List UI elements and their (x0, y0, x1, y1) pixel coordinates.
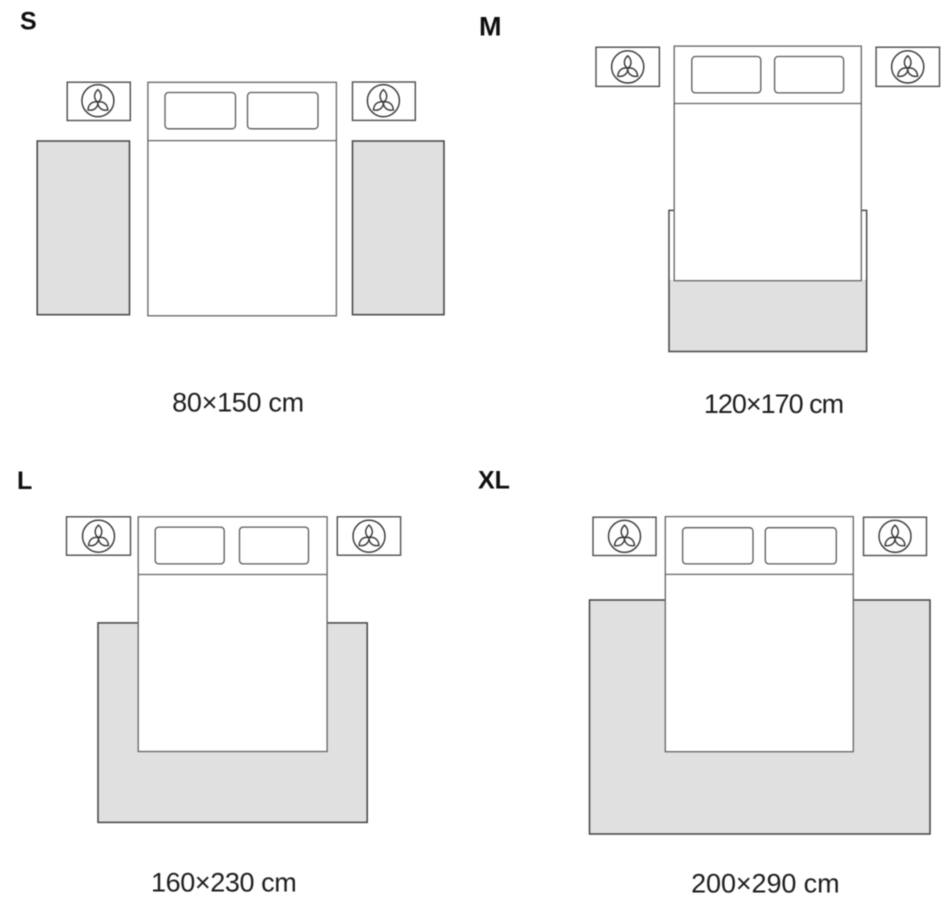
svg-text:200×290 cm: 200×290 cm (691, 868, 839, 898)
svg-text:80×150 cm: 80×150 cm (172, 387, 304, 417)
svg-text:160×230 cm: 160×230 cm (151, 867, 296, 897)
svg-text:S: S (20, 8, 37, 36)
svg-text:120×170 cm: 120×170 cm (704, 389, 843, 419)
svg-text:L: L (17, 467, 32, 495)
svg-text:M: M (479, 11, 502, 41)
svg-text:XL: XL (478, 467, 510, 495)
